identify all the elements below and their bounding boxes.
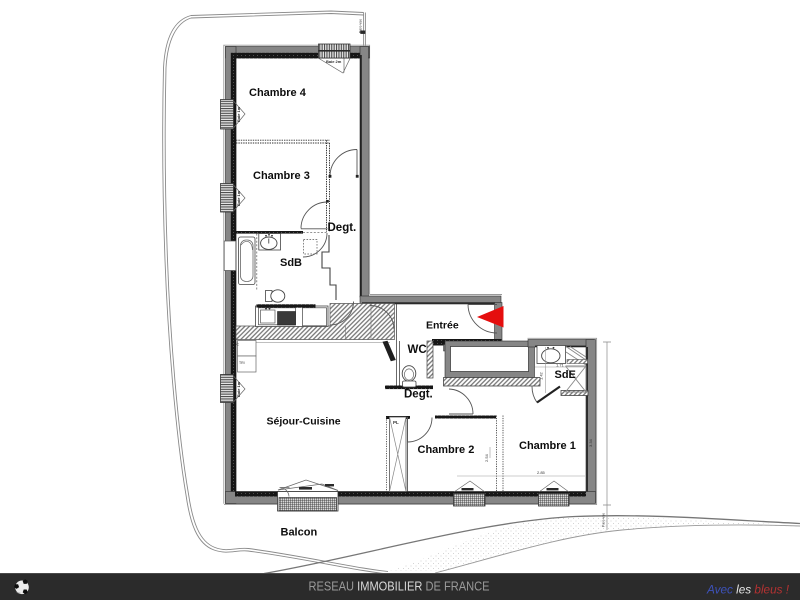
svg-text:1.71: 1.71 bbox=[556, 363, 565, 368]
svg-text:1.42: 1.42 bbox=[539, 371, 544, 380]
svg-text:2.54: 2.54 bbox=[484, 453, 489, 462]
svg-text:Degt.: Degt. bbox=[328, 222, 357, 234]
svg-text:2.85: 2.85 bbox=[537, 470, 546, 475]
svg-text:Baie 1m: Baie 1m bbox=[236, 190, 241, 206]
svg-text:SdB: SdB bbox=[280, 257, 302, 269]
svg-text:Baie 1m: Baie 1m bbox=[236, 381, 241, 397]
svg-text:3.34: 3.34 bbox=[588, 438, 593, 447]
svg-text:WC: WC bbox=[408, 344, 427, 356]
svg-text:RESEAU IMMOBILIER DE FRANCE: RESEAU IMMOBILIER DE FRANCE bbox=[309, 579, 490, 594]
svg-text:Chambre 2: Chambre 2 bbox=[418, 444, 475, 456]
svg-text:Baie 2m: Baie 2m bbox=[326, 59, 342, 64]
svg-text:Avec les bleus !: Avec les bleus ! bbox=[706, 583, 790, 597]
svg-text:Balcon: Balcon bbox=[281, 527, 318, 539]
svg-text:PL: PL bbox=[393, 420, 399, 425]
svg-text:Baie 1m: Baie 1m bbox=[236, 106, 241, 122]
svg-text:SdE: SdE bbox=[555, 369, 576, 381]
svg-text:Entrée: Entrée bbox=[426, 320, 459, 332]
svg-text:Chambre 4: Chambre 4 bbox=[249, 87, 307, 99]
svg-text:Pare-vue: Pare-vue bbox=[602, 513, 606, 527]
svg-text:TRI: TRI bbox=[239, 361, 245, 365]
svg-text:Chambre 1: Chambre 1 bbox=[519, 440, 576, 452]
svg-text:Chambre 3: Chambre 3 bbox=[253, 170, 310, 182]
svg-text:Degt.: Degt. bbox=[404, 389, 433, 401]
svg-text:Séjour-Cuisine: Séjour-Cuisine bbox=[267, 416, 341, 428]
